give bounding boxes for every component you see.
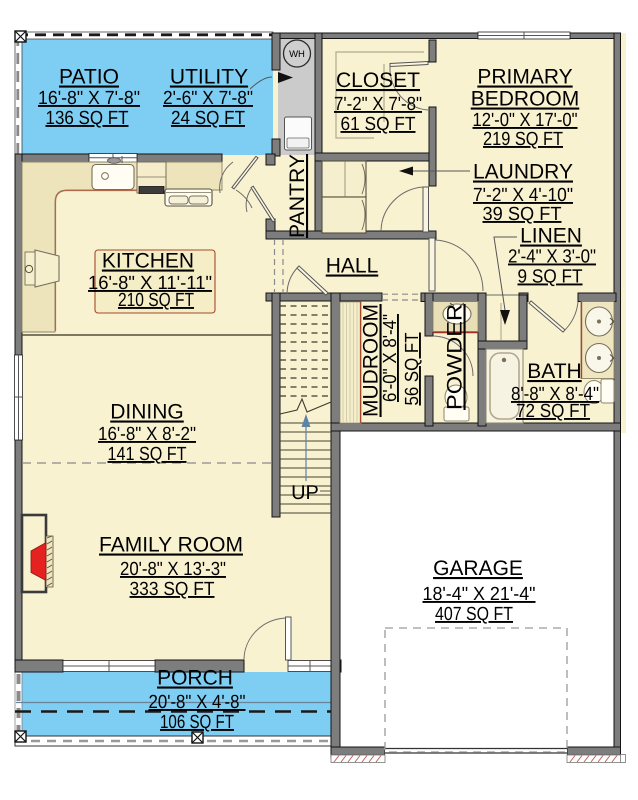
- svg-text:2'-6" X 7'-8": 2'-6" X 7'-8": [163, 88, 253, 109]
- svg-text:141 SQ FT: 141 SQ FT: [108, 444, 187, 465]
- svg-text:CLOSET: CLOSET: [336, 69, 420, 92]
- svg-text:56 SQ FT: 56 SQ FT: [402, 332, 423, 405]
- svg-text:9 SQ FT: 9 SQ FT: [518, 267, 583, 288]
- svg-text:GARAGE: GARAGE: [433, 557, 523, 580]
- svg-text:BATH: BATH: [527, 360, 581, 383]
- svg-text:16'-8" X 7'-8": 16'-8" X 7'-8": [38, 88, 140, 109]
- svg-text:20'-8" X 13'-3": 20'-8" X 13'-3": [120, 559, 226, 580]
- svg-text:PATIO: PATIO: [59, 66, 119, 89]
- svg-text:DINING: DINING: [110, 401, 184, 424]
- svg-text:WH: WH: [289, 49, 305, 60]
- svg-text:LINEN: LINEN: [520, 225, 582, 248]
- svg-text:39 SQ FT: 39 SQ FT: [483, 204, 562, 225]
- svg-text:219 SQ FT: 219 SQ FT: [483, 129, 563, 150]
- svg-text:PANTRY: PANTRY: [286, 154, 309, 238]
- svg-text:106 SQ FT: 106 SQ FT: [160, 712, 234, 733]
- svg-text:PORCH: PORCH: [157, 667, 233, 690]
- svg-text:BEDROOM: BEDROOM: [471, 88, 580, 111]
- svg-text:HALL: HALL: [326, 255, 379, 278]
- svg-text:UP: UP: [291, 482, 319, 504]
- svg-text:FAMILY ROOM: FAMILY ROOM: [99, 534, 243, 557]
- svg-text:61 SQ FT: 61 SQ FT: [341, 114, 416, 135]
- svg-text:136 SQ FT: 136 SQ FT: [46, 108, 129, 129]
- svg-text:333 SQ FT: 333 SQ FT: [130, 579, 215, 600]
- svg-text:6'-0" X 8'-4": 6'-0" X 8'-4": [380, 314, 401, 402]
- svg-text:KITCHEN: KITCHEN: [102, 250, 194, 273]
- svg-text:407 SQ FT: 407 SQ FT: [435, 604, 513, 625]
- svg-text:16'-8" X 8'-2": 16'-8" X 8'-2": [98, 424, 196, 445]
- svg-text:20'-8" X 4'-8": 20'-8" X 4'-8": [149, 692, 246, 713]
- svg-text:7'-2" X 7'-8": 7'-2" X 7'-8": [334, 94, 422, 115]
- svg-text:12'-0" X 17'-0": 12'-0" X 17'-0": [473, 110, 578, 131]
- svg-text:PRIMARY: PRIMARY: [477, 66, 572, 89]
- svg-text:7'-2" X 4'-10": 7'-2" X 4'-10": [473, 185, 573, 206]
- svg-text:210 SQ FT: 210 SQ FT: [118, 290, 194, 311]
- svg-text:18'-4" X 21'-4": 18'-4" X 21'-4": [423, 584, 536, 605]
- svg-text:LAUNDRY: LAUNDRY: [473, 161, 573, 184]
- svg-text:UTILITY: UTILITY: [170, 66, 248, 89]
- svg-text:72 SQ FT: 72 SQ FT: [516, 401, 590, 422]
- svg-text:24 SQ FT: 24 SQ FT: [171, 108, 245, 129]
- svg-text:POWDER: POWDER: [444, 304, 467, 410]
- svg-text:2'-4" X 3'-0": 2'-4" X 3'-0": [508, 247, 596, 268]
